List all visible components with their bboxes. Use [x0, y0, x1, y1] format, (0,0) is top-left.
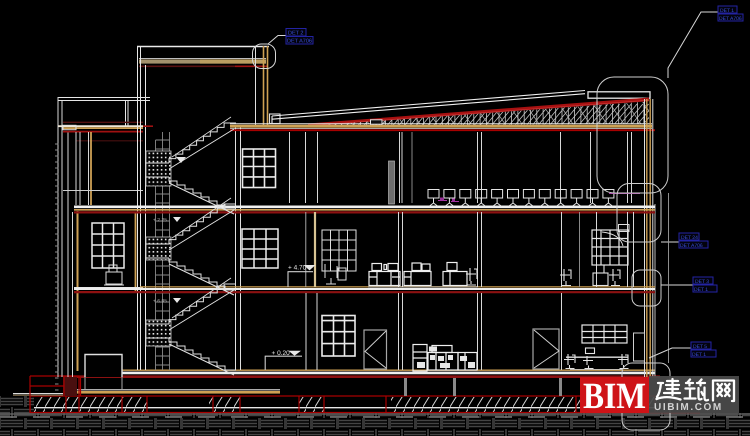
- svg-text:+ 6.95: + 6.95: [153, 299, 167, 305]
- svg-text:DET 2: DET 2: [288, 31, 304, 37]
- svg-text:DET 1: DET 1: [720, 8, 734, 14]
- svg-text:DET A706: DET A706: [719, 16, 742, 22]
- svg-text:DET 1: DET 1: [694, 287, 708, 293]
- svg-text:+ 4.70: + 4.70: [288, 264, 307, 271]
- svg-text:+ 2.25: + 2.25: [153, 218, 167, 224]
- svg-text:DET A706: DET A706: [680, 243, 703, 249]
- svg-text:DET 1: DET 1: [692, 352, 706, 358]
- svg-text:DET 3: DET 3: [695, 279, 709, 285]
- svg-text:DET 24: DET 24: [681, 235, 698, 241]
- svg-text:DET A706: DET A706: [287, 39, 312, 45]
- svg-text:DET 5: DET 5: [693, 344, 707, 350]
- svg-text:UIBIM.COM: UIBIM.COM: [654, 402, 723, 413]
- svg-text:BIM: BIM: [583, 376, 646, 417]
